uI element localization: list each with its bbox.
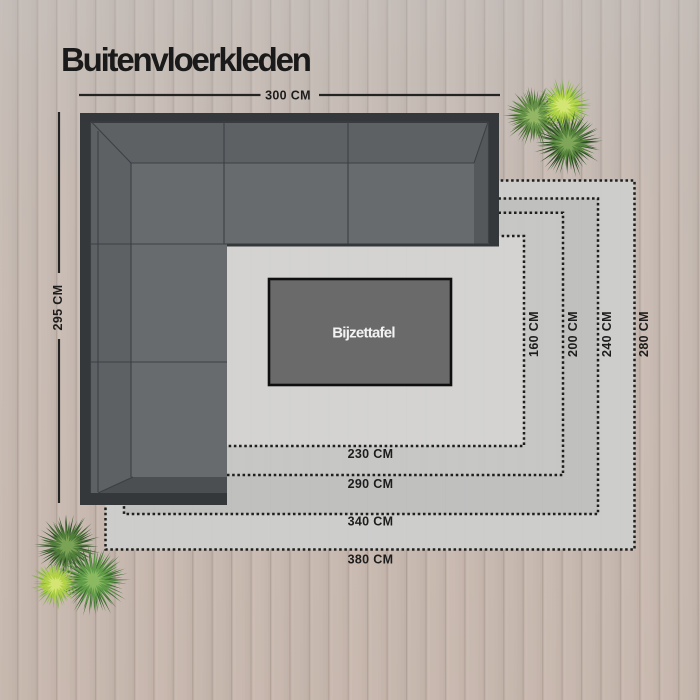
svg-text:160 CM: 160 CM	[527, 311, 541, 357]
svg-text:300 CM: 300 CM	[265, 89, 311, 103]
svg-text:230 CM: 230 CM	[348, 447, 394, 461]
svg-text:200 CM: 200 CM	[566, 311, 580, 357]
svg-text:280 CM: 280 CM	[637, 311, 651, 357]
svg-text:240 CM: 240 CM	[600, 311, 614, 357]
svg-text:380 CM: 380 CM	[348, 553, 394, 567]
svg-text:290 CM: 290 CM	[348, 477, 394, 491]
svg-text:295 CM: 295 CM	[51, 285, 65, 331]
svg-text:Buitenvloerkleden: Buitenvloerkleden	[61, 41, 311, 78]
svg-text:340 CM: 340 CM	[348, 515, 394, 529]
svg-text:Bijzettafel: Bijzettafel	[332, 325, 395, 342]
